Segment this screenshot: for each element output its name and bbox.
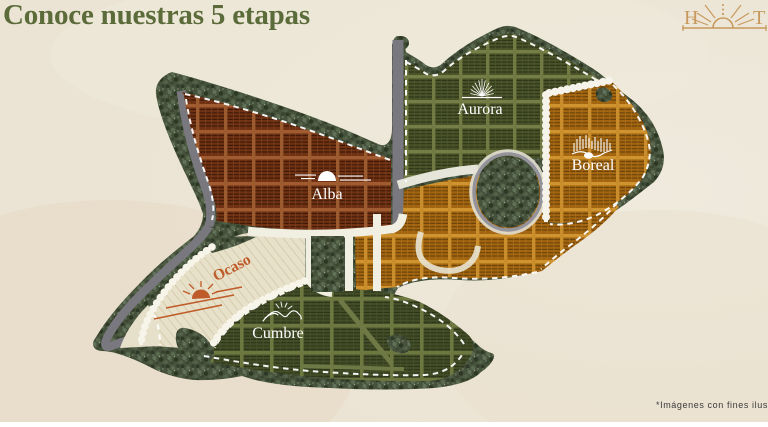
svg-text:T: T <box>753 7 765 29</box>
svg-text:*Imágenes con fines ilustrativ: *Imágenes con fines ilustrativos <box>656 400 768 410</box>
svg-text:Conoce nuestras 5 etapas: Conoce nuestras 5 etapas <box>3 0 310 31</box>
svg-text:Boreal: Boreal <box>572 157 615 174</box>
svg-text:Aurora: Aurora <box>457 101 502 118</box>
svg-text:Cumbre: Cumbre <box>252 325 304 342</box>
svg-text:Alba: Alba <box>311 186 342 203</box>
svg-text:H: H <box>684 7 698 29</box>
